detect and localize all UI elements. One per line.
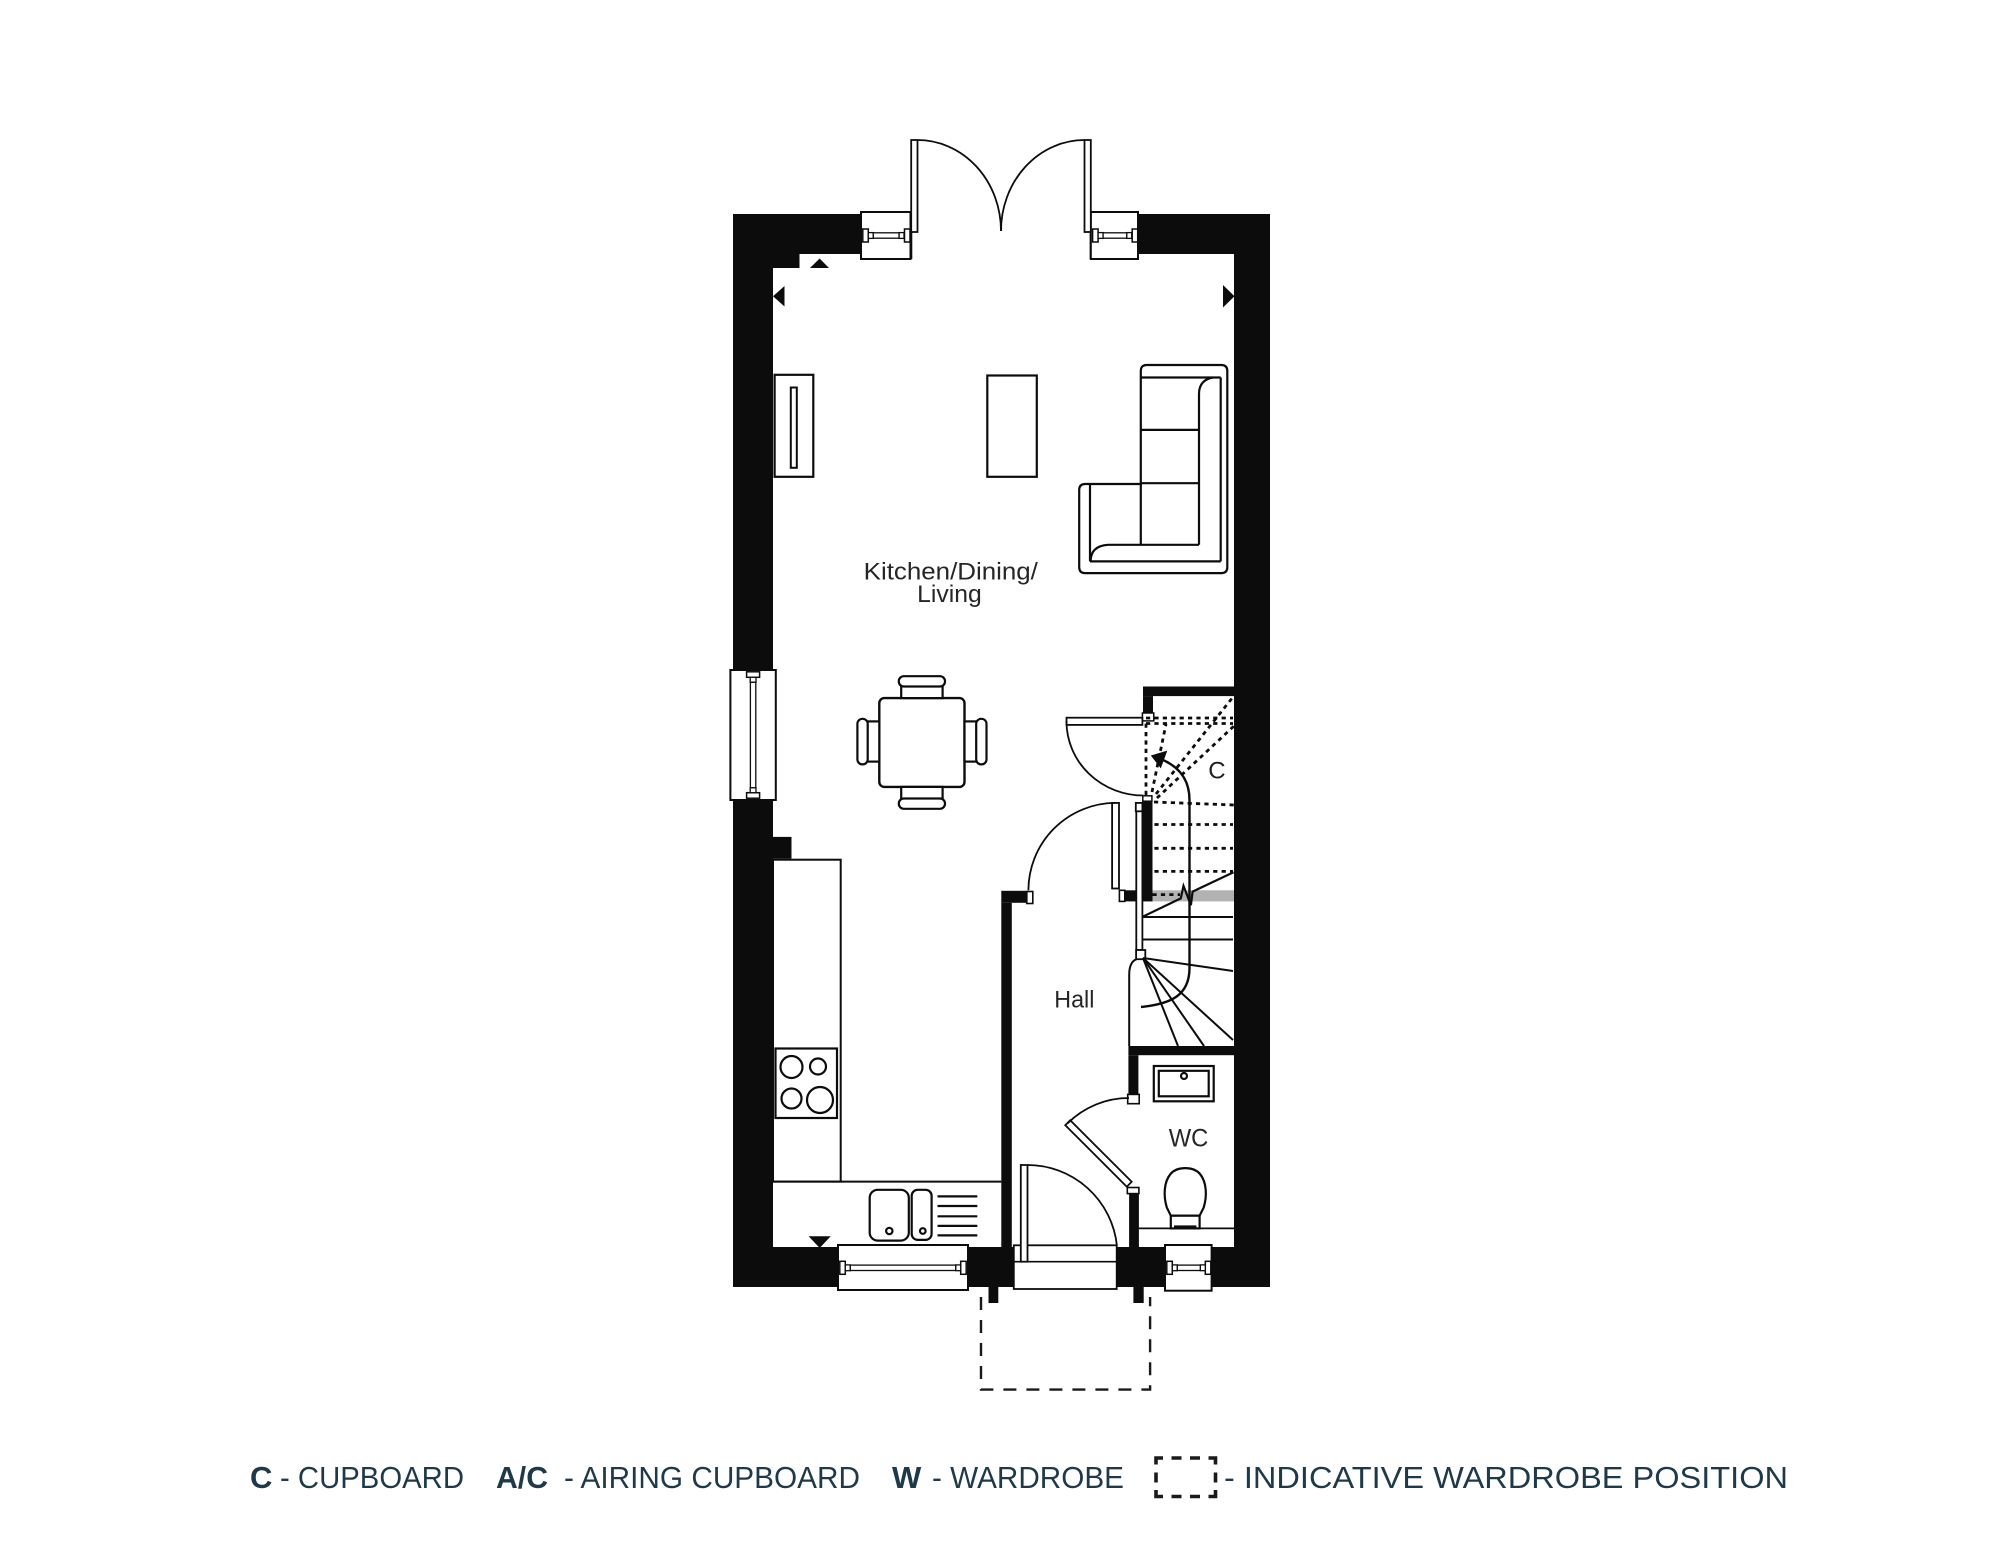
svg-text:- INDICATIVE WARDROBE POSITION: - INDICATIVE WARDROBE POSITION — [1224, 1460, 1788, 1495]
svg-text:Living: Living — [917, 581, 982, 608]
svg-text:W: W — [892, 1460, 922, 1495]
svg-text:C: C — [250, 1460, 272, 1495]
svg-text:WC: WC — [1169, 1124, 1209, 1152]
svg-text:Hall: Hall — [1054, 987, 1094, 1014]
svg-text:- CUPBOARD: - CUPBOARD — [280, 1460, 464, 1495]
svg-text:A/C: A/C — [496, 1460, 548, 1495]
svg-text:- AIRING CUPBOARD: - AIRING CUPBOARD — [564, 1460, 860, 1495]
svg-text:C: C — [1208, 757, 1226, 784]
svg-text:- WARDROBE: - WARDROBE — [932, 1460, 1124, 1495]
